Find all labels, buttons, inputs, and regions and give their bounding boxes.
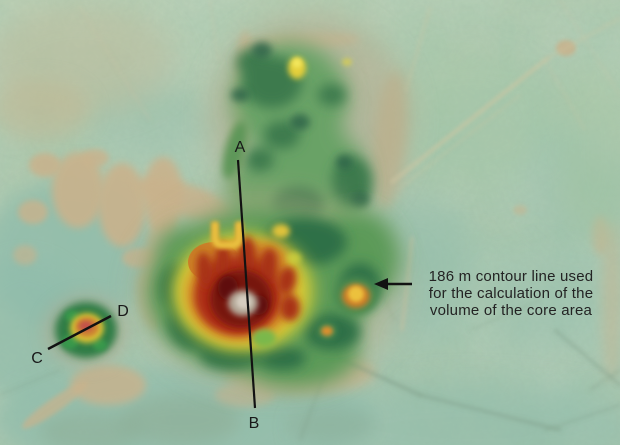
annotation-line-2: for the calculation of the	[429, 285, 593, 302]
annotation-line-1: 186 m contour line used	[429, 268, 594, 285]
west-mound	[44, 295, 128, 367]
lidar-figure: A B C D 186 m contour line used for the …	[0, 0, 620, 445]
main-pyramid-complex	[135, 190, 405, 390]
elevation-map-canvas: A B C D 186 m contour line used for the …	[0, 0, 620, 445]
annotation-line-3: volume of the core area	[430, 302, 593, 319]
profile-label-b: B	[249, 415, 260, 432]
profile-label-d: D	[117, 303, 129, 320]
profile-label-a: A	[235, 139, 246, 156]
profile-label-c: C	[31, 350, 43, 367]
